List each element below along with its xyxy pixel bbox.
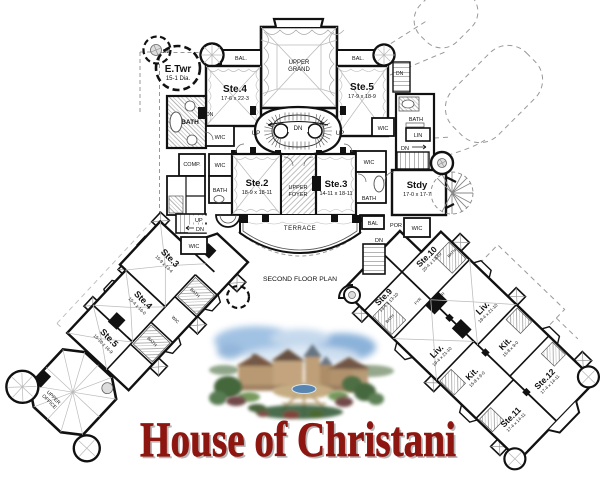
svg-text:Ste.4: Ste.4 <box>223 84 247 95</box>
svg-text:BAL.: BAL. <box>235 56 247 62</box>
svg-text:COMP.: COMP. <box>183 162 201 168</box>
svg-text:BATH: BATH <box>181 119 199 126</box>
svg-text:BATH: BATH <box>213 188 227 194</box>
svg-text:WIC: WIC <box>378 126 389 132</box>
svg-text:DN: DN <box>294 126 303 132</box>
svg-text:DN: DN <box>375 238 383 244</box>
svg-text:TERRACE: TERRACE <box>284 226 316 232</box>
svg-text:Ste.3: Ste.3 <box>325 179 348 190</box>
svg-text:WIC: WIC <box>215 163 226 169</box>
svg-text:UPPER: UPPER <box>289 185 308 191</box>
svg-text:DN: DN <box>396 71 404 77</box>
svg-text:DN: DN <box>206 112 214 118</box>
svg-text:15-1 Dia.: 15-1 Dia. <box>166 76 191 82</box>
svg-text:FOYER: FOYER <box>289 192 308 198</box>
svg-text:WIC: WIC <box>189 244 200 250</box>
svg-text:BAL.: BAL. <box>352 56 364 62</box>
svg-text:BATH: BATH <box>409 117 423 123</box>
svg-text:WIC: WIC <box>412 226 423 232</box>
svg-text:17-0 x 17-7: 17-0 x 17-7 <box>403 192 431 198</box>
svg-text:UP: UP <box>336 131 344 137</box>
svg-text:18-9 x 18-11: 18-9 x 18-11 <box>242 190 272 196</box>
svg-text:Ste.5: Ste.5 <box>350 82 374 93</box>
svg-text:UP: UP <box>252 131 260 137</box>
svg-text:UPPER: UPPER <box>289 60 310 66</box>
svg-text:UP: UP <box>195 218 203 224</box>
svg-text:BATH: BATH <box>362 196 376 202</box>
svg-text:WIC: WIC <box>215 135 226 141</box>
svg-text:House of Christani: House of Christani <box>140 411 456 467</box>
svg-text:LIN: LIN <box>414 133 423 139</box>
svg-text:BAL: BAL <box>368 221 378 227</box>
svg-text:SECOND FLOOR PLAN: SECOND FLOOR PLAN <box>263 276 337 283</box>
svg-text:POR: POR <box>390 223 402 229</box>
svg-text:Ste.2: Ste.2 <box>246 178 269 189</box>
svg-text:Stdy: Stdy <box>407 180 428 191</box>
svg-text:WIC: WIC <box>364 160 375 166</box>
svg-text:E.Twr: E.Twr <box>165 64 192 75</box>
svg-text:GRAND: GRAND <box>288 67 310 73</box>
svg-text:DN: DN <box>401 146 409 152</box>
svg-text:17-6 x 22-3: 17-6 x 22-3 <box>221 96 249 102</box>
svg-text:17-9 x 18-9: 17-9 x 18-9 <box>348 94 376 100</box>
svg-text:DN: DN <box>196 227 204 233</box>
svg-text:DN: DN <box>163 49 171 55</box>
svg-text:14-11 x 18-11: 14-11 x 18-11 <box>319 191 352 197</box>
